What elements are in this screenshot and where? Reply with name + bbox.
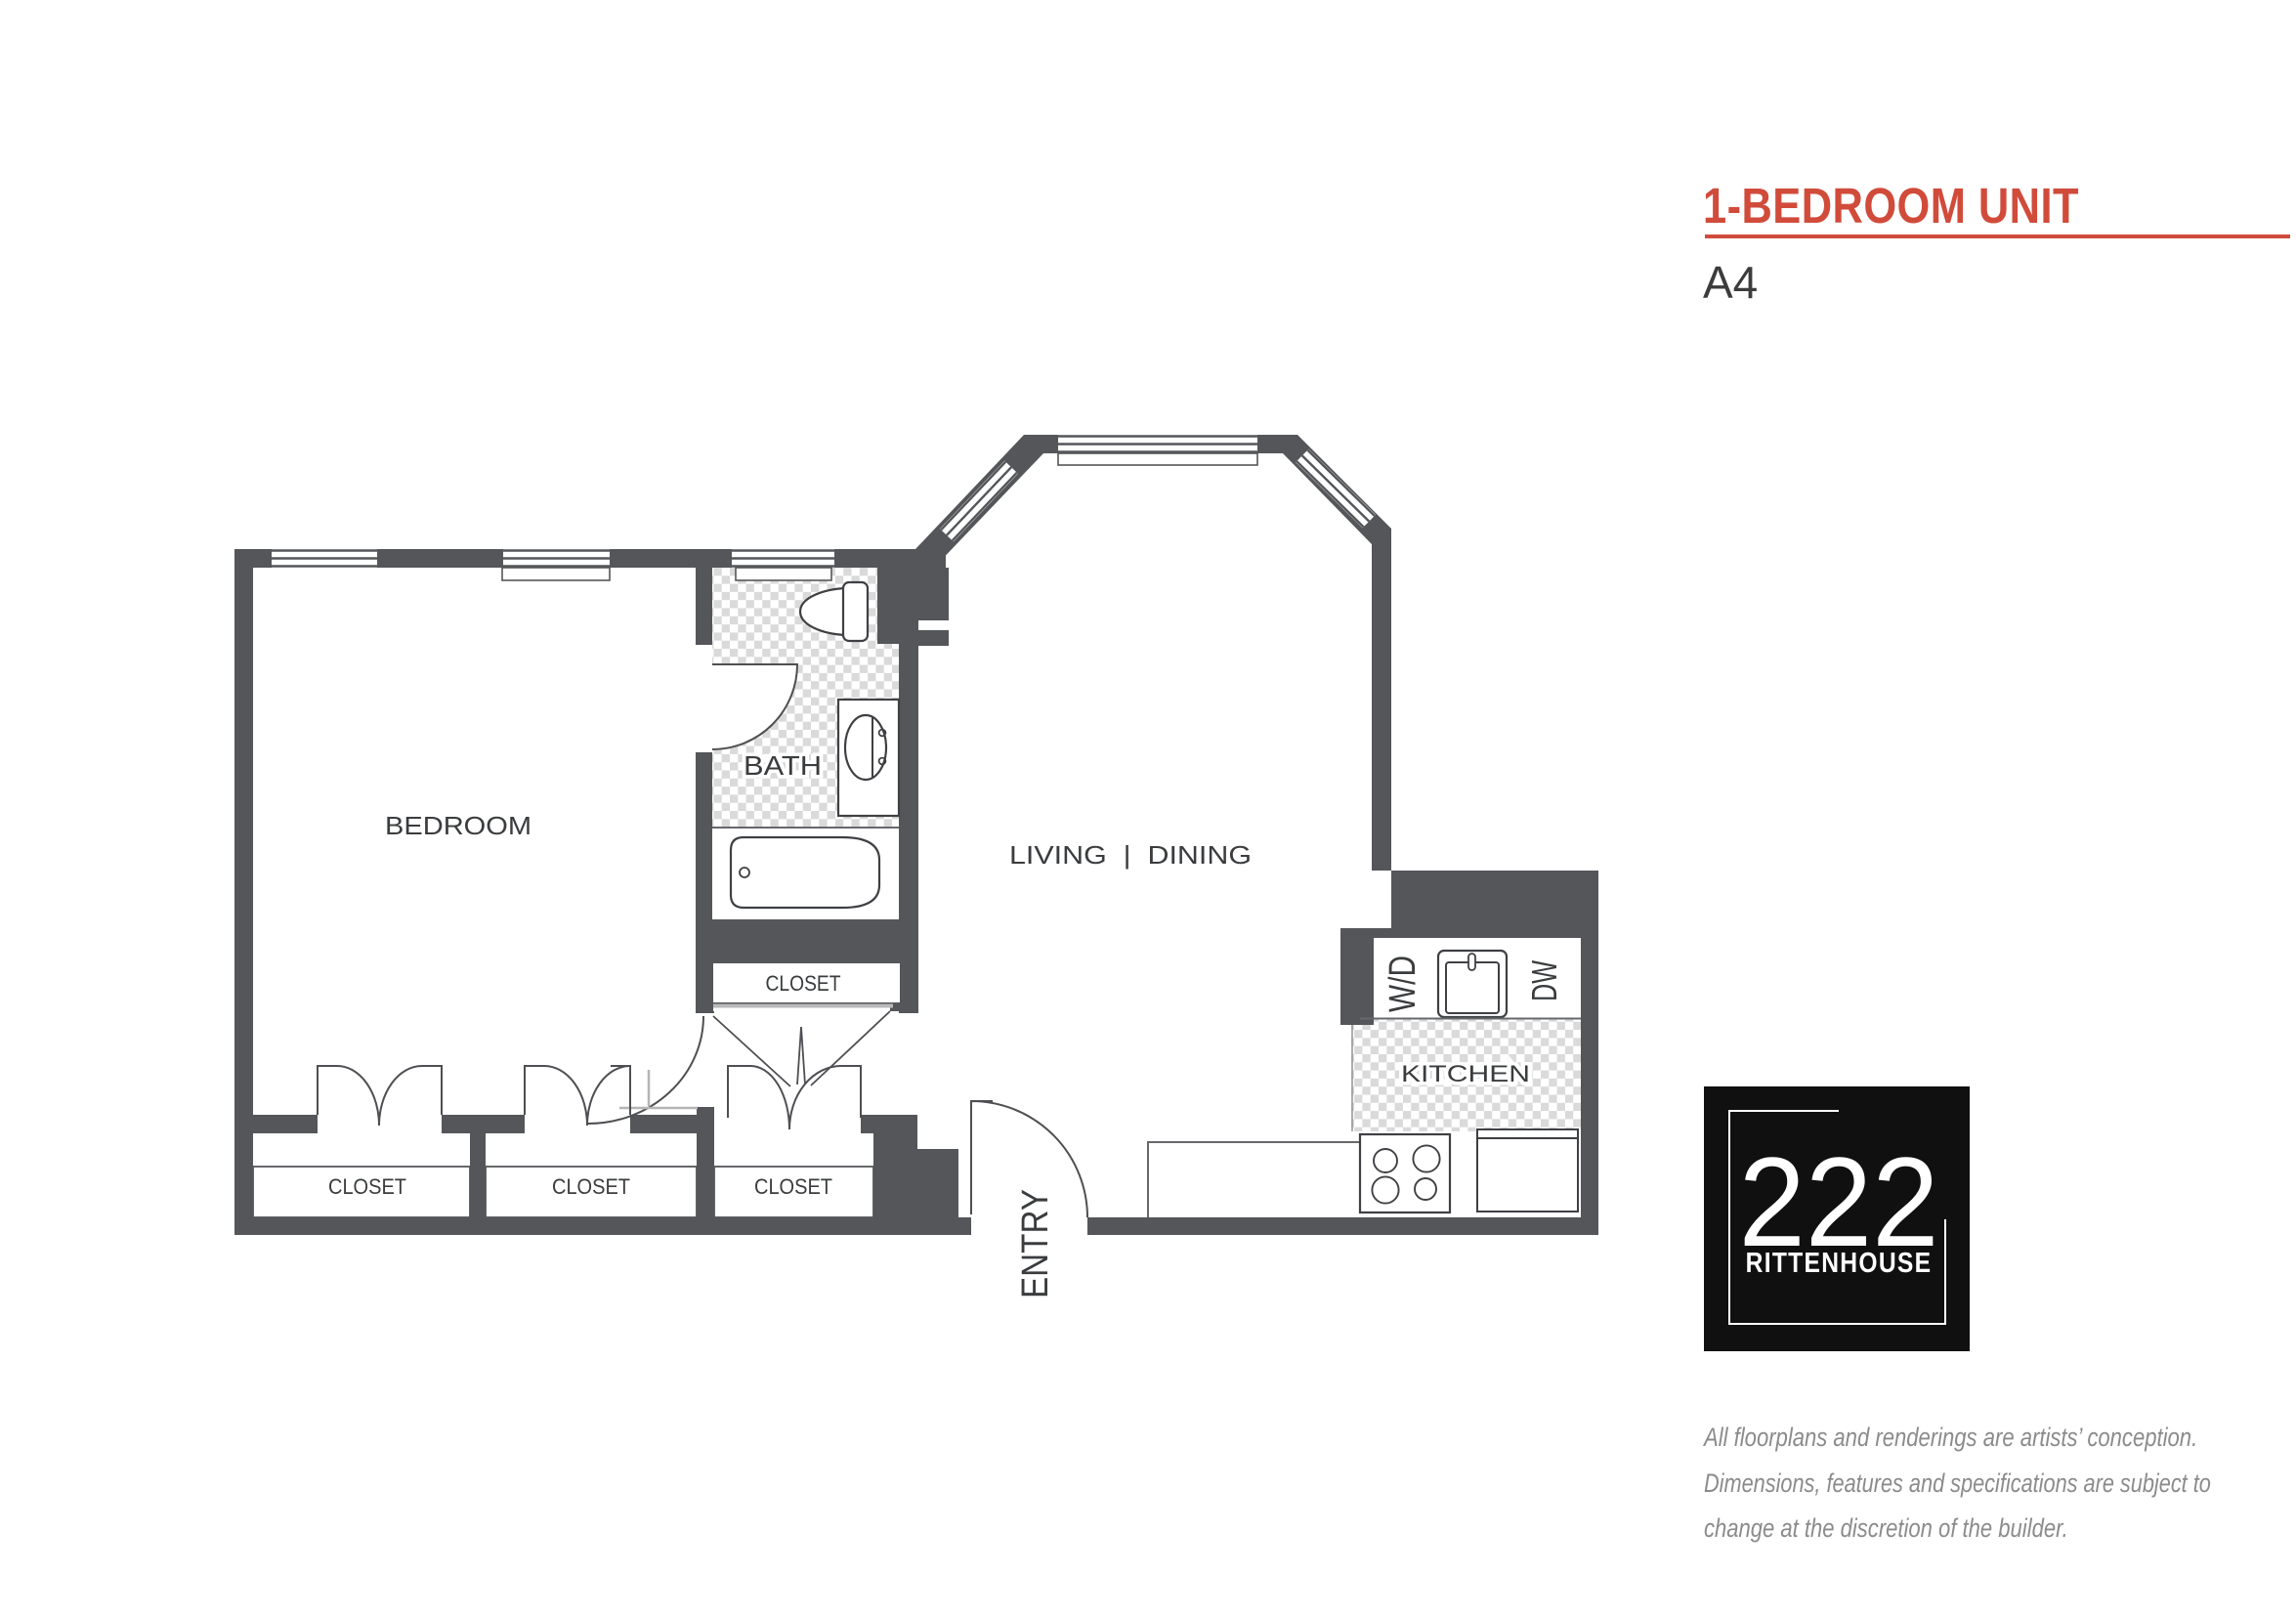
svg-text:LIVING | DINING: LIVING | DINING xyxy=(1009,840,1252,870)
svg-text:CLOSET: CLOSET xyxy=(754,1174,832,1199)
svg-text:CLOSET: CLOSET xyxy=(552,1174,630,1199)
svg-text:BEDROOM: BEDROOM xyxy=(385,811,531,840)
svg-text:DW: DW xyxy=(1524,960,1564,1001)
svg-text:W/D: W/D xyxy=(1382,956,1424,1012)
svg-text:CLOSET: CLOSET xyxy=(766,971,841,996)
svg-text:ENTRY: ENTRY xyxy=(1015,1189,1056,1298)
svg-text:KITCHEN: KITCHEN xyxy=(1401,1061,1530,1087)
svg-text:CLOSET: CLOSET xyxy=(328,1174,406,1199)
svg-text:BATH: BATH xyxy=(744,750,822,781)
